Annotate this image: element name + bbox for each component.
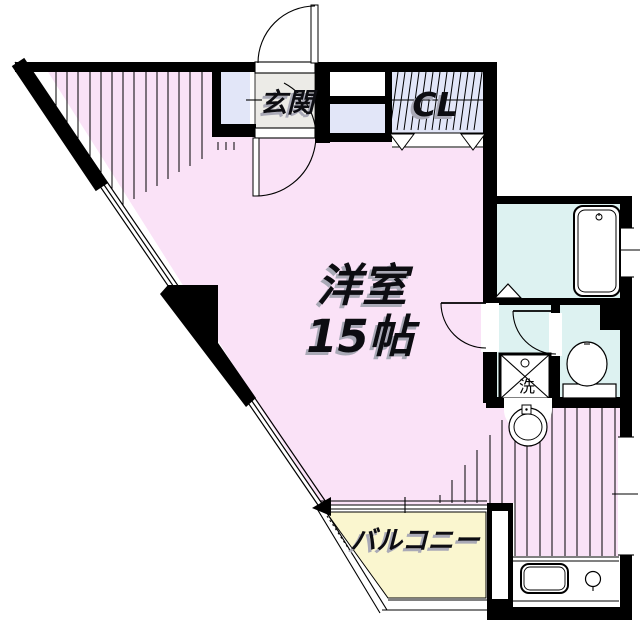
kitchen-counter bbox=[513, 557, 619, 603]
bath-top-wall bbox=[486, 196, 632, 204]
entrance-right-wall bbox=[315, 62, 330, 143]
storage-lower bbox=[330, 104, 385, 134]
shoe-cabinet-bar bbox=[212, 124, 256, 137]
toilet-door-gap bbox=[549, 313, 562, 356]
bottom-wall bbox=[487, 607, 632, 620]
toilet-duct bbox=[600, 305, 620, 330]
top-wall-right bbox=[318, 62, 497, 72]
bath-wash-divider bbox=[486, 298, 620, 305]
main-room-name-label: 洋室 bbox=[317, 259, 414, 312]
closet-door-strip bbox=[390, 133, 485, 150]
storage-upper bbox=[330, 72, 385, 96]
bath-window bbox=[618, 228, 640, 277]
bathtub bbox=[574, 206, 620, 296]
entrance-threshold-inner bbox=[255, 128, 315, 138]
shoe-cabinet bbox=[221, 70, 250, 126]
kitchen-burner-icon bbox=[586, 572, 601, 587]
storage-bottom-bar bbox=[315, 133, 392, 142]
laundry-label: 洗 bbox=[519, 377, 535, 396]
entrance-label: 玄関 bbox=[260, 88, 318, 119]
main-room-size-label: 15帖 bbox=[306, 310, 421, 363]
closet-left-wall bbox=[385, 62, 392, 142]
balcony-door-panel[interactable] bbox=[492, 511, 508, 599]
washroom-door-gap bbox=[481, 303, 499, 352]
floor-plan: 洗 bbox=[0, 0, 640, 631]
closet-label: CL bbox=[412, 85, 457, 124]
entrance-threshold-outer bbox=[255, 62, 315, 73]
shoe-cabinet-wall bbox=[212, 66, 221, 126]
washing-machine-area: 洗 bbox=[500, 354, 550, 399]
balcony-label: バルコニー bbox=[350, 526, 480, 556]
storage-divider bbox=[330, 96, 385, 104]
